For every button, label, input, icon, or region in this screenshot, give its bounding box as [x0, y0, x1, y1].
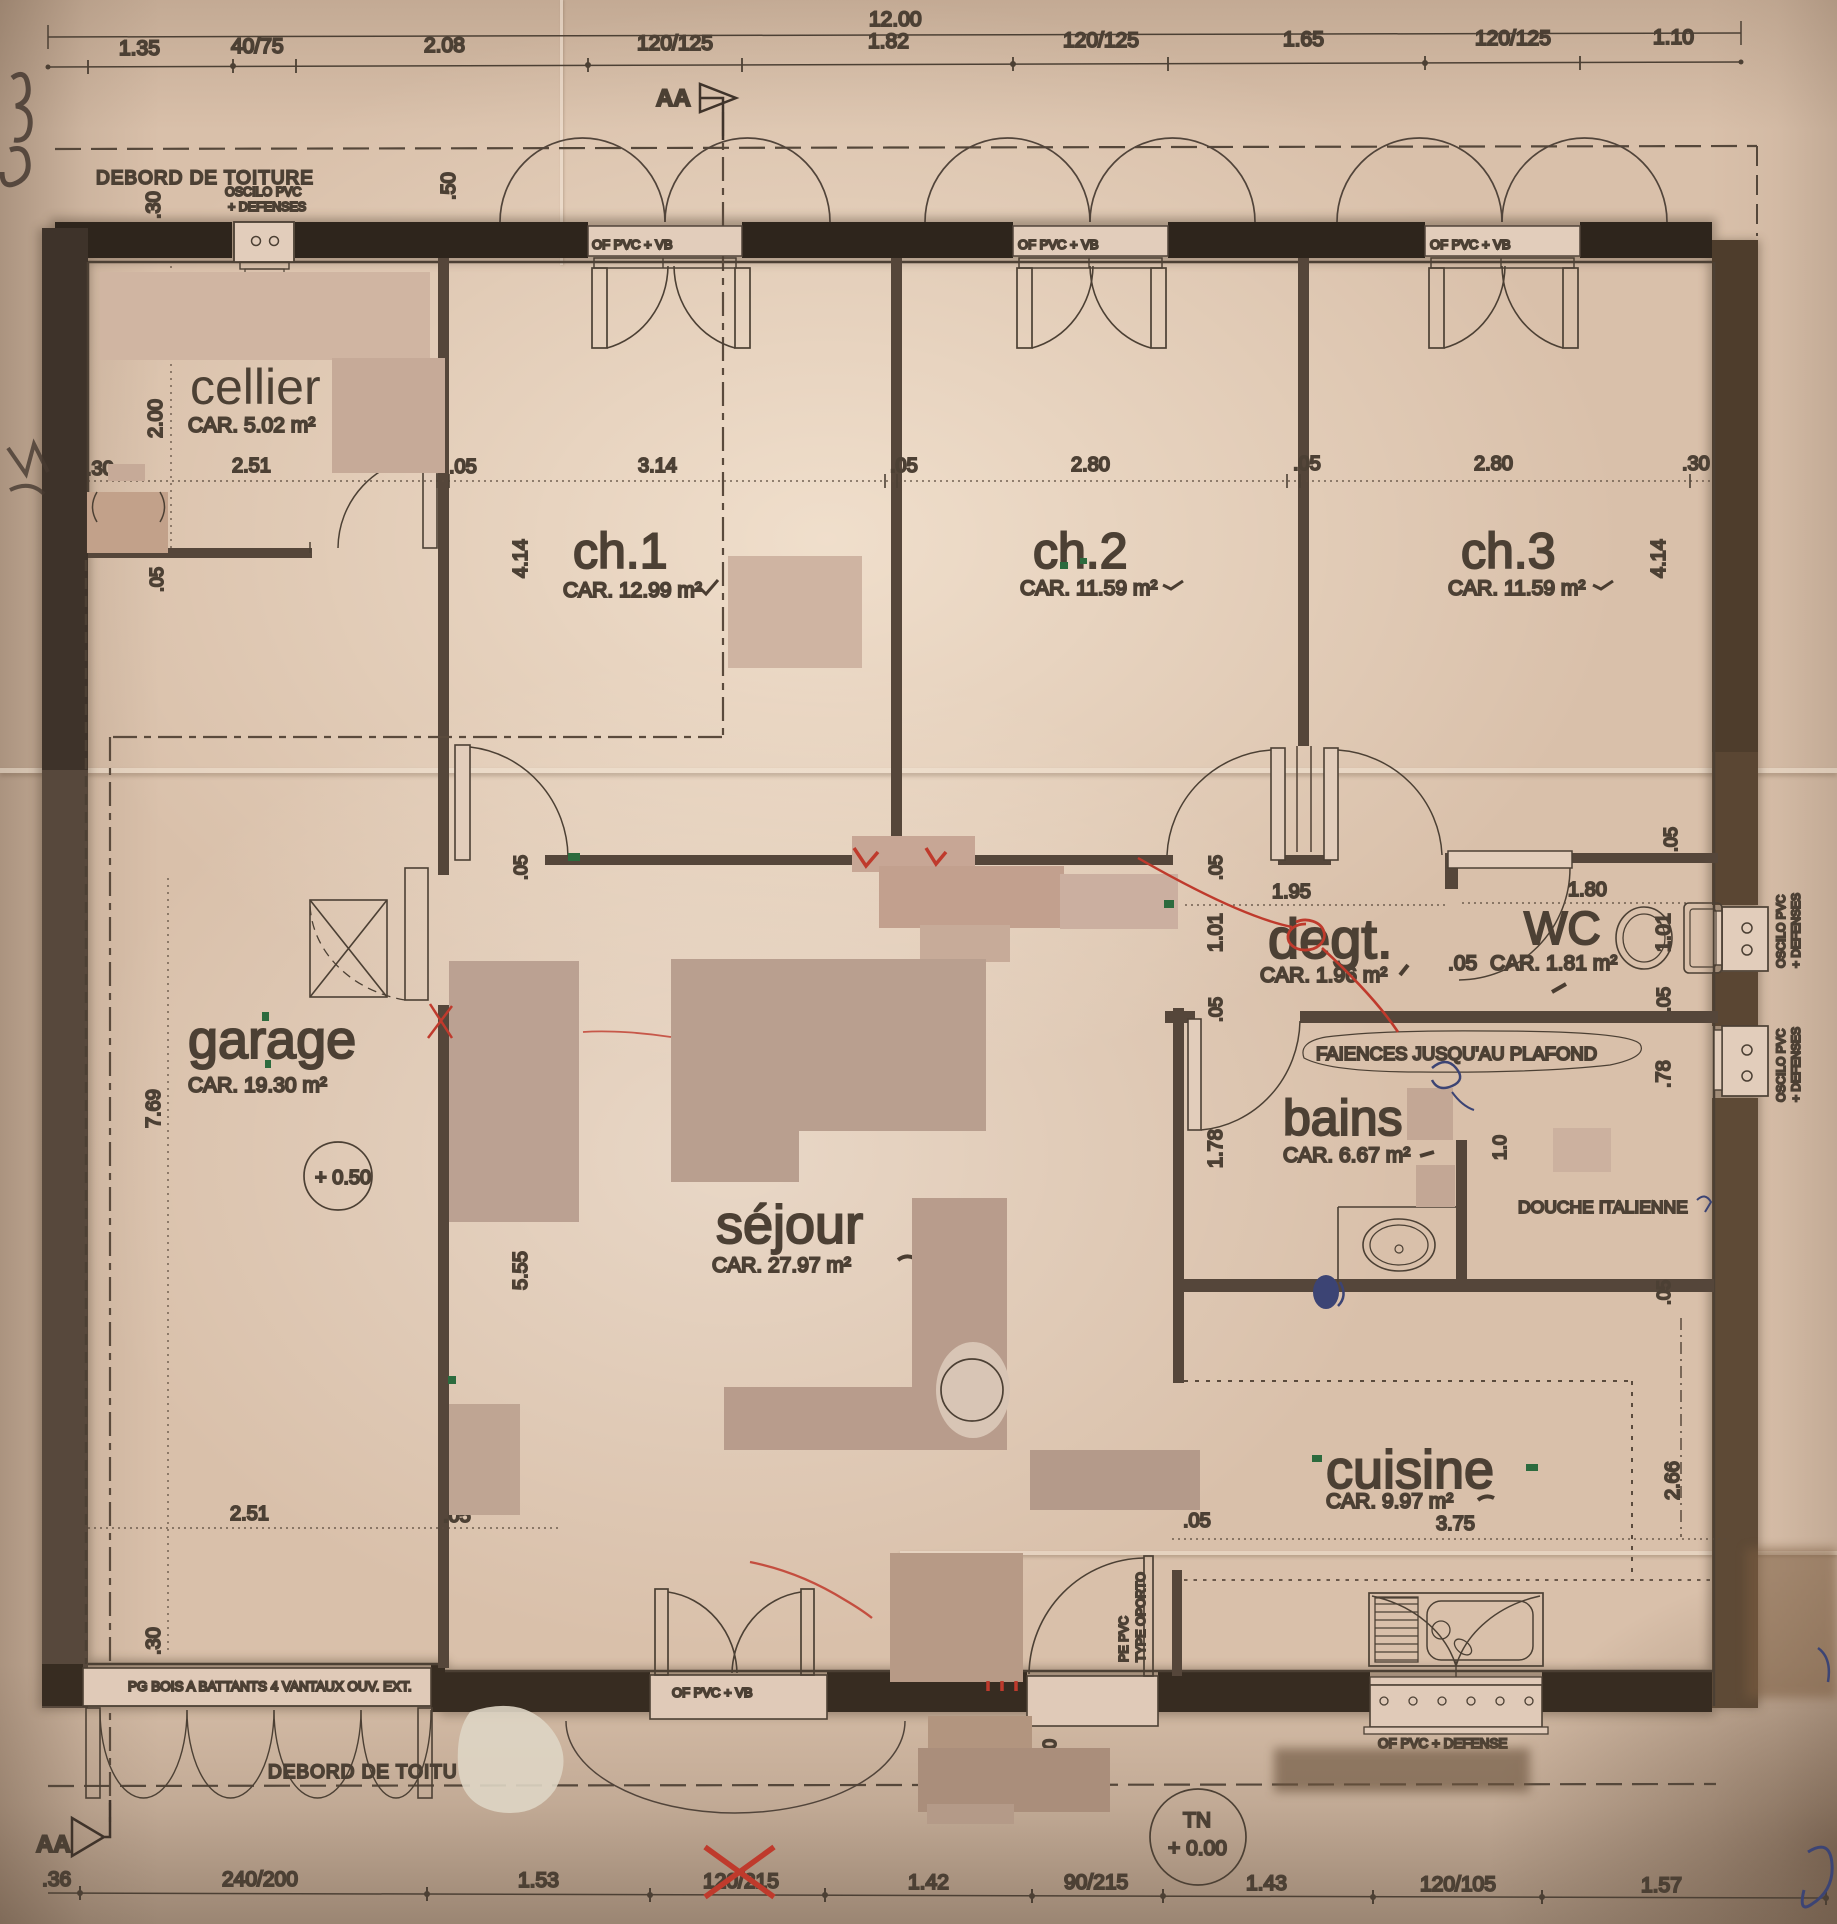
svg-text:DEBORD DE TOITU: DEBORD DE TOITU [268, 1762, 458, 1783]
svg-text:120/125: 120/125 [637, 32, 713, 55]
svg-text:séjour: séjour [716, 1195, 863, 1255]
svg-text:+ DEFENSES: + DEFENSES [1789, 1027, 1803, 1102]
svg-text:1.57: 1.57 [1641, 1874, 1682, 1897]
svg-text:5.55: 5.55 [510, 1251, 532, 1290]
svg-text:2.66: 2.66 [1662, 1461, 1684, 1500]
svg-text:+ 0.00: + 0.00 [1168, 1837, 1227, 1860]
svg-text:1.10: 1.10 [1653, 26, 1694, 49]
svg-text:+ 0.50: + 0.50 [315, 1167, 371, 1189]
svg-text:12.00: 12.00 [869, 8, 922, 31]
svg-text:.36: .36 [42, 1868, 71, 1891]
svg-text:.05: .05 [449, 456, 477, 478]
svg-text:CAR. 11.59 m²: CAR. 11.59 m² [1448, 577, 1585, 600]
svg-text:OF PVC + VB: OF PVC + VB [592, 237, 673, 252]
svg-text:2.08: 2.08 [424, 34, 465, 57]
svg-text:2.51: 2.51 [230, 1503, 269, 1525]
svg-text:1.01: 1.01 [1205, 913, 1227, 952]
svg-text:TN: TN [1183, 1809, 1211, 1832]
svg-text:OSCILO PVC: OSCILO PVC [1774, 894, 1788, 968]
svg-text:WC: WC [1524, 902, 1601, 954]
svg-text:4.14: 4.14 [510, 539, 532, 578]
svg-text:.30: .30 [1682, 453, 1710, 475]
svg-text:CAR. 6.67 m²: CAR. 6.67 m² [1283, 1144, 1410, 1167]
svg-text:.05: .05 [1206, 997, 1226, 1022]
svg-text:1.01: 1.01 [1653, 913, 1675, 952]
svg-text:AA: AA [656, 85, 691, 112]
svg-text:.05: .05 [511, 855, 531, 880]
svg-text:.05: .05 [147, 567, 167, 592]
svg-text:1.35: 1.35 [119, 37, 160, 60]
svg-text:1.65: 1.65 [1283, 28, 1324, 51]
svg-text:CAR. 19.30 m²: CAR. 19.30 m² [188, 1074, 327, 1097]
svg-text:.30: .30 [143, 191, 165, 219]
svg-text:.05: .05 [1661, 827, 1681, 852]
svg-text:OSCILO PVC: OSCILO PVC [1774, 1028, 1788, 1102]
svg-text:garage: garage [188, 1010, 356, 1070]
svg-text:+ DEFENSES: + DEFENSES [1789, 893, 1803, 968]
svg-text:2.80: 2.80 [1474, 453, 1513, 475]
svg-text:3.14: 3.14 [638, 455, 677, 477]
svg-text:1.82: 1.82 [868, 30, 909, 53]
svg-text:7.69: 7.69 [143, 1089, 165, 1128]
svg-text:CAR. 1.81 m²: CAR. 1.81 m² [1490, 952, 1617, 975]
svg-text:CAR. 12.99 m²: CAR. 12.99 m² [563, 579, 702, 602]
svg-text:2.51: 2.51 [232, 455, 271, 477]
svg-text:.50: .50 [438, 172, 460, 200]
svg-text:120/125: 120/125 [1475, 27, 1551, 50]
svg-text:DOUCHE ITALIENNE: DOUCHE ITALIENNE [1518, 1197, 1688, 1217]
svg-text:1.42: 1.42 [908, 1871, 949, 1894]
svg-text:FAIENCES JUSQU'AU PLAFOND: FAIENCES JUSQU'AU PLAFOND [1316, 1043, 1597, 1064]
svg-text:ch.2: ch.2 [1033, 523, 1128, 579]
svg-text:.05: .05 [1654, 1280, 1674, 1305]
svg-text:PG BOIS A BATTANTS 4 VANTAUX O: PG BOIS A BATTANTS 4 VANTAUX OUV. EXT. [128, 1679, 412, 1694]
svg-text:.30: .30 [143, 1627, 165, 1655]
svg-text:1.78: 1.78 [1205, 1129, 1227, 1168]
svg-text:ch.3: ch.3 [1461, 523, 1556, 579]
svg-text:OF PVC + VB: OF PVC + VB [1430, 237, 1511, 252]
svg-text:120/125: 120/125 [1063, 29, 1139, 52]
svg-text:.05: .05 [890, 455, 918, 477]
svg-text:OF PVC + VB: OF PVC + VB [672, 1685, 753, 1700]
svg-text:.05: .05 [1654, 987, 1674, 1012]
svg-text:OF PVC + VB: OF PVC + VB [1018, 237, 1099, 252]
svg-text:40/75: 40/75 [231, 35, 284, 58]
svg-text:CAR. 11.59 m²: CAR. 11.59 m² [1020, 577, 1157, 600]
svg-text:AA: AA [36, 1831, 71, 1858]
svg-text:1.43: 1.43 [1246, 1872, 1287, 1895]
svg-text:90/215: 90/215 [1064, 1871, 1128, 1894]
svg-text:1.0: 1.0 [1490, 1135, 1510, 1160]
svg-text:2.80: 2.80 [1071, 454, 1110, 476]
svg-text:TYPE OPORTO: TYPE OPORTO [1134, 1572, 1148, 1662]
svg-text:1.95: 1.95 [1272, 881, 1311, 903]
svg-text:3.75: 3.75 [1436, 1513, 1475, 1535]
svg-text:.05: .05 [1448, 952, 1477, 975]
svg-text:120/105: 120/105 [1420, 1873, 1496, 1896]
svg-text:2.00: 2.00 [145, 399, 167, 438]
svg-text:CAR. 27.97 m²: CAR. 27.97 m² [712, 1254, 851, 1277]
svg-text:1.53: 1.53 [518, 1869, 559, 1892]
svg-text:.05: .05 [1206, 855, 1226, 880]
svg-text:OSCILO PVC: OSCILO PVC [225, 185, 301, 199]
svg-text:CAR. 9.97 m²: CAR. 9.97 m² [1326, 1490, 1453, 1513]
svg-text:+ DEFENSES: + DEFENSES [228, 200, 306, 214]
svg-text:240/200: 240/200 [222, 1868, 298, 1891]
svg-text:.78: .78 [1653, 1060, 1675, 1088]
svg-text:1.80: 1.80 [1568, 879, 1607, 901]
svg-text:4.14: 4.14 [1648, 539, 1670, 578]
svg-text:.05: .05 [1293, 453, 1321, 475]
svg-text:cellier: cellier [190, 359, 321, 415]
svg-text:.05: .05 [1183, 1510, 1211, 1532]
svg-text:CAR. 5.02 m²: CAR. 5.02 m² [188, 414, 315, 437]
svg-text:CAR. 1.96 m²: CAR. 1.96 m² [1260, 964, 1387, 987]
svg-text:ch.1: ch.1 [573, 523, 668, 579]
svg-text:bains: bains [1283, 1090, 1403, 1146]
svg-text:PE PVC: PE PVC [1117, 1616, 1131, 1662]
